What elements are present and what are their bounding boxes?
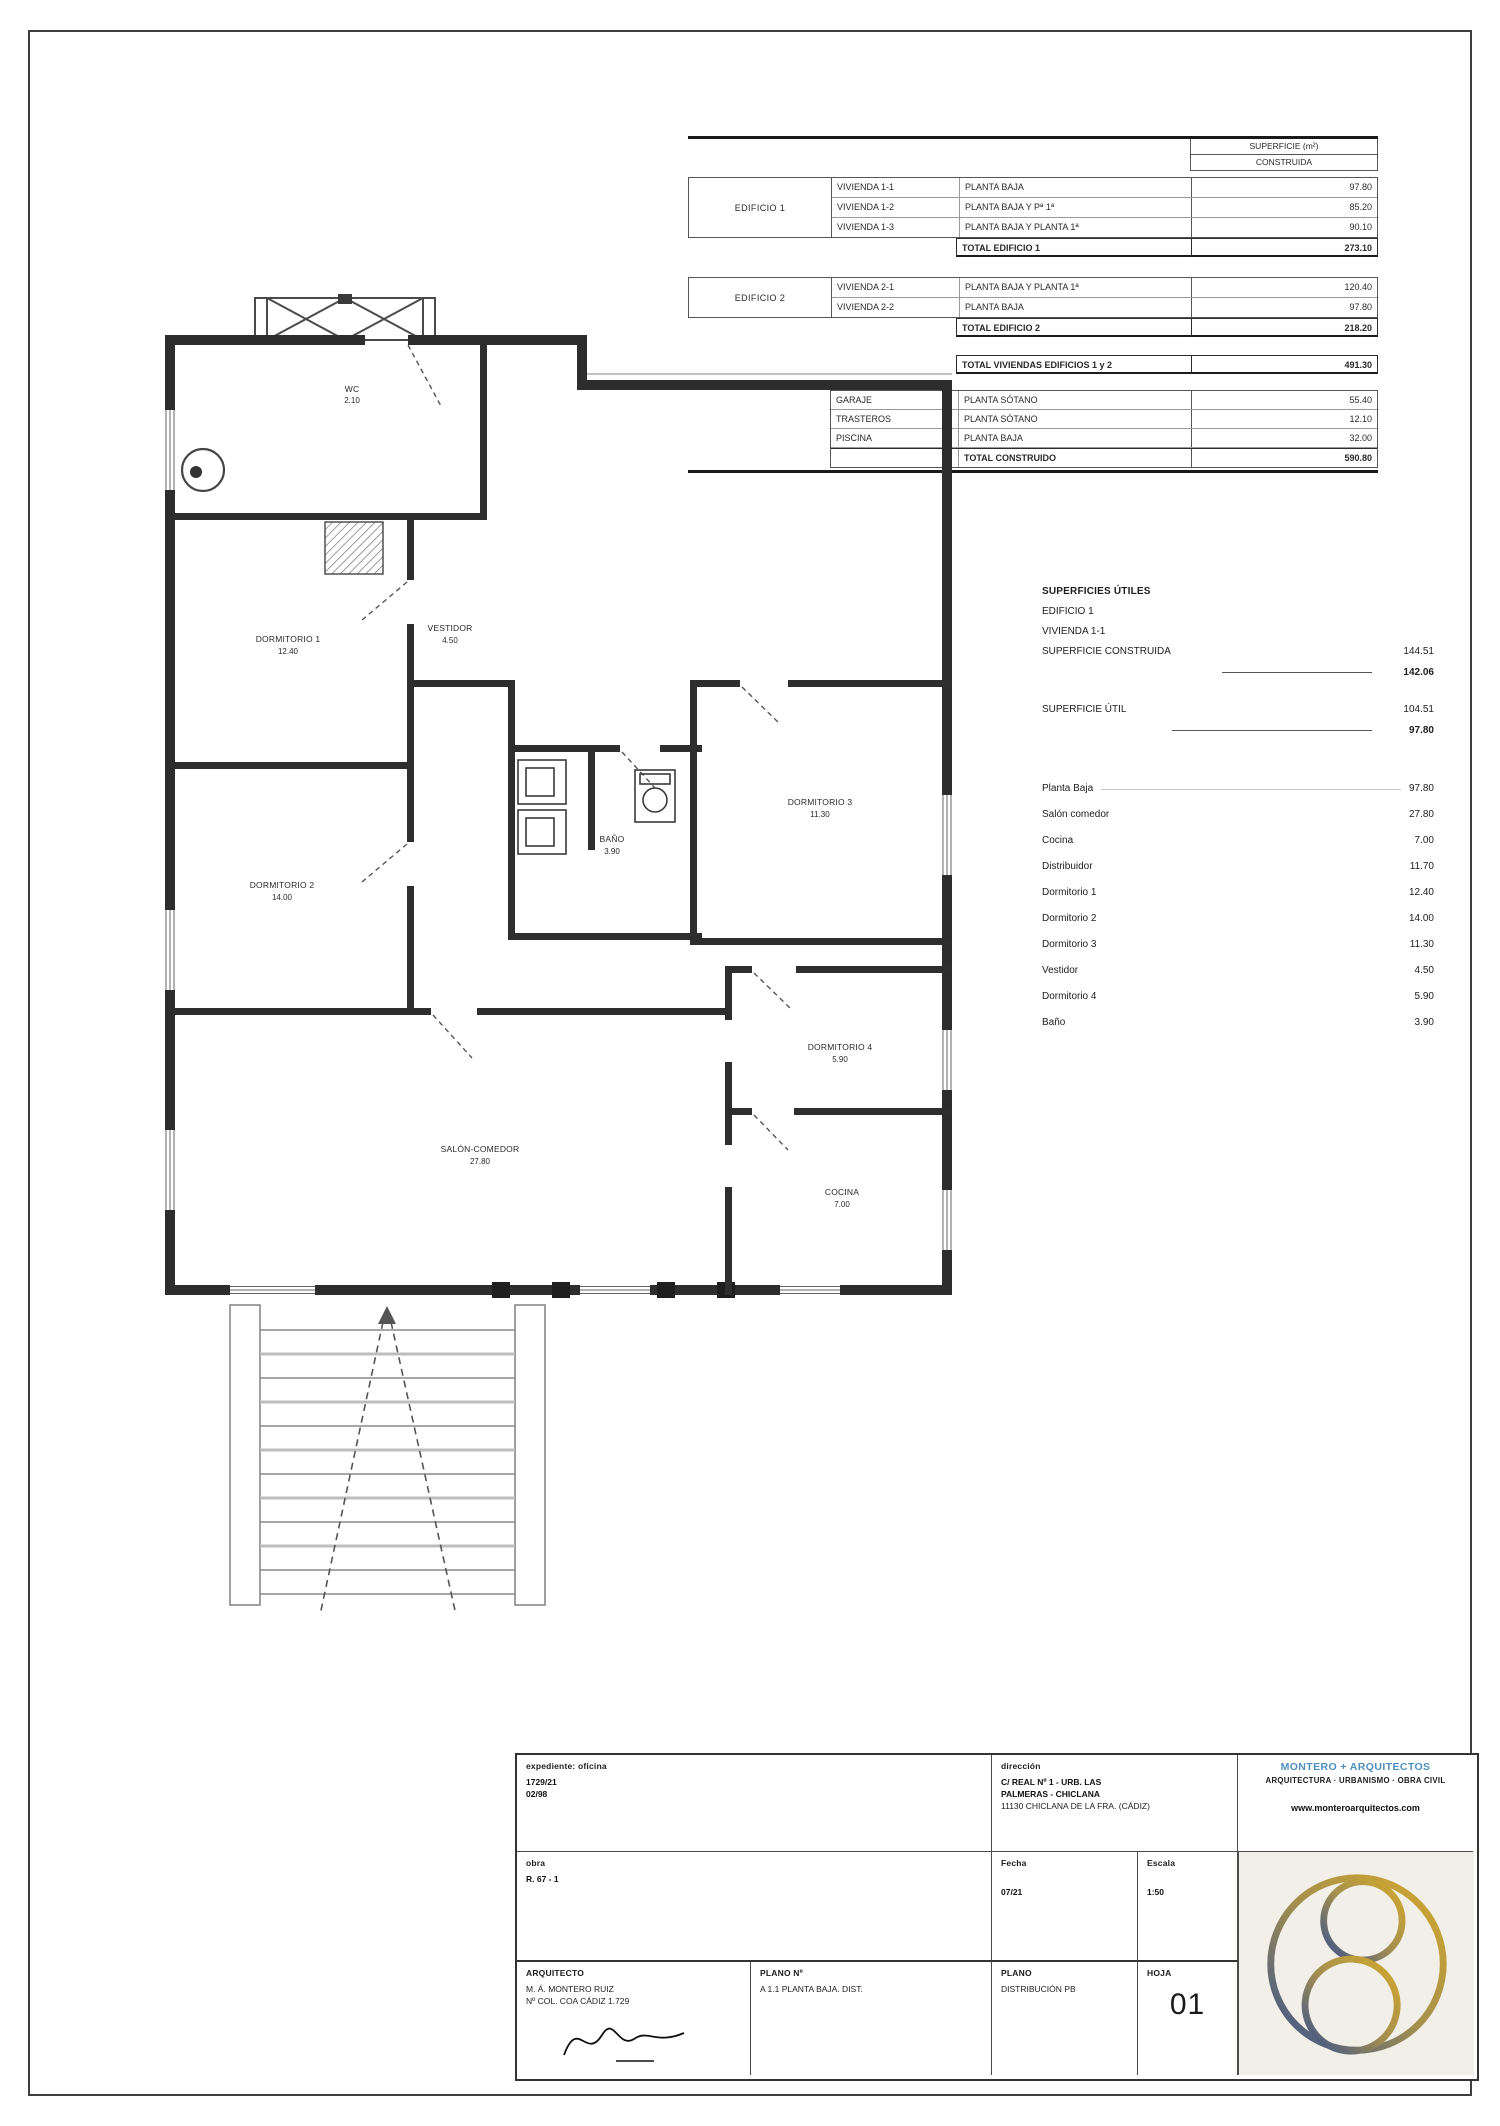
direccion-line1: C/ REAL Nº 1 - URB. LAS	[1001, 1776, 1228, 1788]
company-name: MONTERO + ARQUITECTOS	[1247, 1761, 1464, 1773]
interior-walls	[172, 345, 952, 1295]
room-area: 4.50	[1415, 958, 1434, 984]
room-row: Dormitorio 4 5.90	[1042, 984, 1434, 1010]
titleblock-fecha-cell: Fecha 07/21	[992, 1852, 1138, 1962]
arquitecto-label: ARQUITECTO	[526, 1968, 741, 1978]
shaft-hatch	[325, 522, 383, 574]
arquitecto-line2: Nº COL. COA CÁDIZ 1.729	[526, 1995, 741, 2007]
room-name: Vestidor	[1042, 958, 1078, 984]
plano-num-value: A 1.1 PLANTA BAJA. DIST.	[760, 1983, 982, 1995]
expediente-label: expediente: oficina	[526, 1761, 982, 1771]
titleblock-hoja-cell: HOJA 01	[1138, 1962, 1238, 2075]
built-surface-v1: 144.51	[1403, 642, 1434, 662]
room-area: 97.80	[1409, 776, 1434, 802]
direccion-line2: PALMERAS - CHICLANA	[1001, 1788, 1228, 1800]
titleblock-obra-cell: obra R. 67 - 1	[517, 1852, 992, 1962]
room-area: 12.40	[1409, 880, 1434, 906]
value-cell: 120.40	[1191, 278, 1377, 297]
building1-name: EDIFICIO 1	[689, 178, 832, 237]
building1-table: EDIFICIO 1 VIVIENDA 1-1 PLANTA BAJA 97.8…	[688, 177, 1378, 238]
titleblock-plano-num-cell: PLANO Nº A 1.1 PLANTA BAJA. DIST.	[751, 1962, 992, 2075]
direccion-line3: 11130 CHICLANA DE LA FRA. (CÁDIZ)	[1001, 1800, 1228, 1812]
signature-icon	[556, 2009, 706, 2067]
room-label-wc: WC	[345, 384, 360, 394]
annex-total-value: 590.80	[1191, 449, 1377, 467]
room-row: Baño 3.90	[1042, 1010, 1434, 1036]
room-label-dormitorio2: DORMITORIO 2	[250, 880, 315, 890]
room-area-dormitorio4: 5.90	[832, 1055, 848, 1064]
titleblock-arquitecto-cell: ARQUITECTO M. Á. MONTERO RUIZ Nº COL. CO…	[517, 1962, 751, 2075]
room-name: Dormitorio 1	[1042, 880, 1096, 906]
room-name: Dormitorio 3	[1042, 932, 1096, 958]
sheet-number: 01	[1147, 1988, 1228, 2022]
room-name: Cocina	[1042, 828, 1073, 854]
room-name: Distribuidor	[1042, 854, 1093, 880]
room-area: 14.00	[1409, 906, 1434, 932]
boiler-symbol	[182, 449, 224, 491]
room-name: Dormitorio 2	[1042, 906, 1096, 932]
plano-num-label: PLANO Nº	[760, 1968, 982, 1978]
table-row: VIVIENDA 1-2 PLANTA BAJA Y Pª 1ª 85.20	[832, 198, 1377, 218]
room-name: Planta Baja	[1042, 776, 1093, 802]
plano-value: DISTRIBUCIÓN PB	[1001, 1983, 1128, 1995]
built-surface-label: SUPERFICIE CONSTRUIDA	[1042, 642, 1171, 662]
value-cell: 90.10	[1191, 218, 1377, 237]
room-label-cocina: COCINA	[825, 1187, 859, 1197]
room-label-vestidor: VESTIDOR	[427, 623, 472, 633]
expediente-line1: 1729/21	[526, 1776, 982, 1788]
obra-line1: R. 67 - 1	[526, 1873, 982, 1885]
exterior-walls	[165, 335, 952, 1295]
escala-value: 1:50	[1147, 1886, 1228, 1898]
titleblock-direccion-cell: dirección C/ REAL Nº 1 - URB. LAS PALMER…	[992, 1755, 1238, 1852]
grand-total-value: 491.30	[1192, 355, 1378, 374]
table-row: VIVIENDA 1-3 PLANTA BAJA Y PLANTA 1ª 90.…	[832, 218, 1377, 237]
room-row: Vestidor 4.50	[1042, 958, 1434, 984]
room-area: 27.80	[1409, 802, 1434, 828]
hoja-label: HOJA	[1147, 1968, 1228, 1978]
plano-label: PLANO	[1001, 1968, 1128, 1978]
room-area-cocina: 7.00	[834, 1200, 850, 1209]
company-subtitle: ARQUITECTURA · URBANISMO · OBRA CIVIL	[1247, 1776, 1464, 1785]
direccion-label: dirección	[1001, 1761, 1228, 1771]
room-name: Salón comedor	[1042, 802, 1109, 828]
titleblock-expediente-cell: expediente: oficina 1729/21 02/98	[517, 1755, 992, 1852]
obra-label: obra	[526, 1858, 982, 1868]
room-area: 11.30	[1410, 932, 1434, 958]
plan-sheet: SUPERFICIE (m²) CONSTRUIDA EDIFICIO 1 VI…	[0, 0, 1500, 2126]
entrance-porch	[255, 294, 435, 340]
title-block: expediente: oficina 1729/21 02/98 direcc…	[515, 1753, 1479, 2081]
planta-cell: PLANTA BAJA	[960, 178, 1191, 197]
room-row: Dormitorio 1 12.40	[1042, 880, 1434, 906]
value-cell: 55.40	[1191, 391, 1377, 409]
planta-cell: PLANTA BAJA Y Pª 1ª	[960, 198, 1191, 217]
surface-header-line2: CONSTRUIDA	[1191, 154, 1377, 170]
room-area-vestidor: 4.50	[442, 636, 458, 645]
company-logo-cell	[1238, 1852, 1474, 2075]
useful-surface-label: SUPERFICIE ÚTIL	[1042, 700, 1126, 720]
bathroom-fixtures	[518, 760, 675, 854]
summary-title: SUPERFICIES ÚTILES	[1042, 582, 1151, 602]
value-cell: 97.80	[1191, 178, 1377, 197]
room-row: Planta Baja 97.80	[1042, 776, 1434, 802]
building1-total-label: TOTAL EDIFICIO 1	[956, 238, 1192, 257]
expediente-line2: 02/98	[526, 1788, 982, 1800]
leader-line	[1101, 789, 1401, 802]
figure-eight-logo-icon	[1259, 1858, 1455, 2070]
value-cell: 97.80	[1191, 298, 1377, 317]
room-label-dormitorio3: DORMITORIO 3	[788, 797, 853, 807]
built-surface-total-line: 142.06	[1042, 662, 1434, 682]
built-surface-v2: 142.06	[1372, 667, 1434, 678]
room-row: Distribuidor 11.70	[1042, 854, 1434, 880]
escala-label: Escala	[1147, 1858, 1228, 1868]
room-label-bano: BAÑO	[600, 834, 625, 844]
room-name: Baño	[1042, 1010, 1065, 1036]
room-area-salon: 27.80	[470, 1157, 491, 1166]
surface-header-line1: SUPERFICIE (m²)	[1191, 139, 1377, 154]
useful-surface-summary: SUPERFICIES ÚTILES EDIFICIO 1 VIVIENDA 1…	[1042, 582, 1434, 1036]
summary-building: EDIFICIO 1	[1042, 602, 1094, 622]
fecha-value: 07/21	[1001, 1886, 1128, 1898]
room-area-wc: 2.10	[344, 396, 360, 405]
useful-surface-total-line: 97.80	[1042, 720, 1434, 740]
value-cell: 12.10	[1191, 410, 1377, 428]
staircase	[230, 1305, 545, 1615]
door-openings	[406, 580, 796, 1187]
room-label-dormitorio4: DORMITORIO 4	[808, 1042, 873, 1052]
fecha-label: Fecha	[1001, 1858, 1128, 1868]
vivienda-cell: VIVIENDA 1-1	[832, 178, 960, 197]
building1-total-value: 273.10	[1192, 238, 1378, 257]
titleblock-company-cell: MONTERO + ARQUITECTOS ARQUITECTURA · URB…	[1238, 1755, 1473, 1852]
room-area-dormitorio1: 12.40	[278, 647, 299, 656]
useful-surface-v1: 104.51	[1403, 700, 1434, 720]
titleblock-escala-cell: Escala 1:50	[1138, 1852, 1238, 1962]
room-row: Dormitorio 2 14.00	[1042, 906, 1434, 932]
summary-vivienda: VIVIENDA 1-1	[1042, 622, 1105, 642]
building2-total-value: 218.20	[1192, 318, 1378, 337]
room-area: 3.90	[1415, 1010, 1434, 1036]
stair-arrow-head	[378, 1306, 396, 1324]
vivienda-cell: VIVIENDA 1-3	[832, 218, 960, 237]
room-row: Cocina 7.00	[1042, 828, 1434, 854]
building1-total-row: TOTAL EDIFICIO 1 273.10	[688, 238, 1378, 257]
room-area-dormitorio2: 14.00	[272, 893, 293, 902]
useful-surface-v2: 97.80	[1372, 725, 1434, 736]
room-labels: WC 2.10 DORMITORIO 1 12.40 DORMITORIO 2 …	[250, 384, 873, 1209]
company-website: www.monteroarquitectos.com	[1247, 1803, 1464, 1813]
room-row: Dormitorio 3 11.30	[1042, 932, 1434, 958]
floor-plan: WC 2.10 DORMITORIO 1 12.40 DORMITORIO 2 …	[140, 290, 1000, 1665]
room-row: Salón comedor 27.80	[1042, 802, 1434, 828]
table-row: VIVIENDA 1-1 PLANTA BAJA 97.80	[832, 178, 1377, 198]
room-area: 5.90	[1415, 984, 1434, 1010]
room-area: 11.70	[1410, 854, 1434, 880]
vivienda-cell: VIVIENDA 1-2	[832, 198, 960, 217]
planta-cell: PLANTA BAJA Y PLANTA 1ª	[960, 218, 1191, 237]
titleblock-plano-cell: PLANO DISTRIBUCIÓN PB	[992, 1962, 1138, 2075]
room-label-salon: SALÓN-COMEDOR	[441, 1144, 520, 1154]
value-cell: 32.00	[1191, 429, 1377, 447]
arquitecto-line1: M. Á. MONTERO RUIZ	[526, 1983, 741, 1995]
room-area-dormitorio3: 11.30	[810, 810, 830, 819]
room-name: Dormitorio 4	[1042, 984, 1096, 1010]
room-label-dormitorio1: DORMITORIO 1	[256, 634, 321, 644]
room-area-bano: 3.90	[604, 847, 620, 856]
value-cell: 85.20	[1191, 198, 1377, 217]
surface-header: SUPERFICIE (m²) CONSTRUIDA	[1190, 139, 1378, 171]
room-area: 7.00	[1415, 828, 1434, 854]
window	[165, 410, 952, 1295]
